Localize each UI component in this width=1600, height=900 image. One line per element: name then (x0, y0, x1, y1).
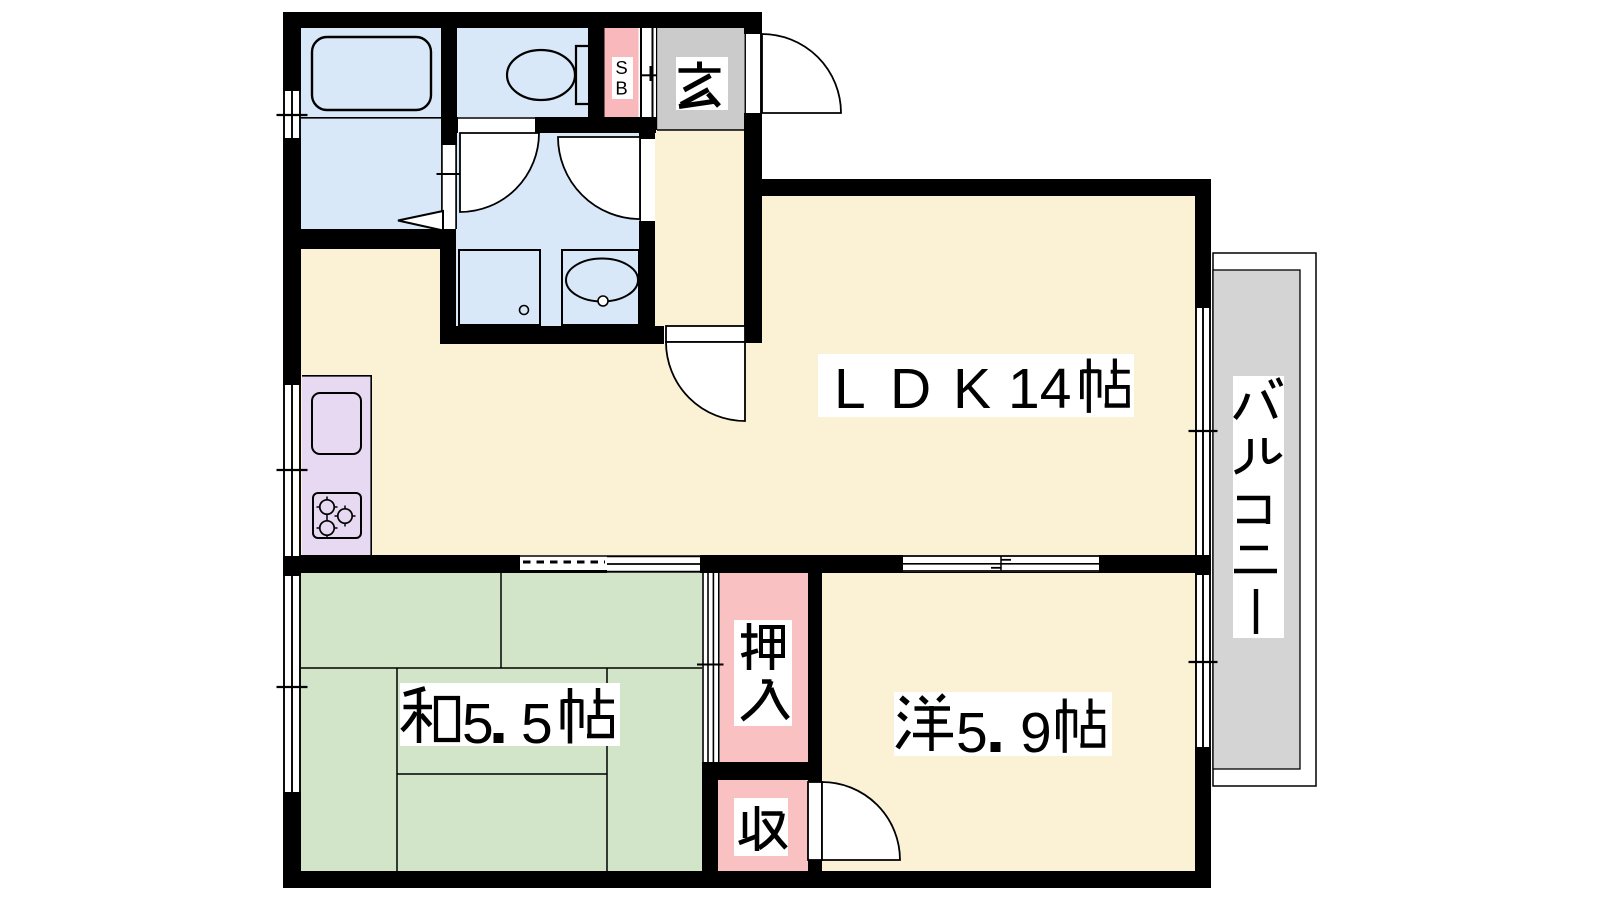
svg-text:14: 14 (1008, 357, 1071, 421)
svg-text:5: 5 (462, 692, 494, 756)
svg-text:D: D (890, 357, 931, 421)
svg-text:B: B (615, 78, 627, 99)
svg-text:5: 5 (956, 701, 988, 765)
svg-text:S: S (615, 57, 627, 78)
svg-text:5: 5 (521, 692, 553, 756)
svg-text:K: K (953, 357, 991, 421)
svg-text:9: 9 (1020, 701, 1052, 765)
svg-text:L: L (834, 357, 866, 421)
